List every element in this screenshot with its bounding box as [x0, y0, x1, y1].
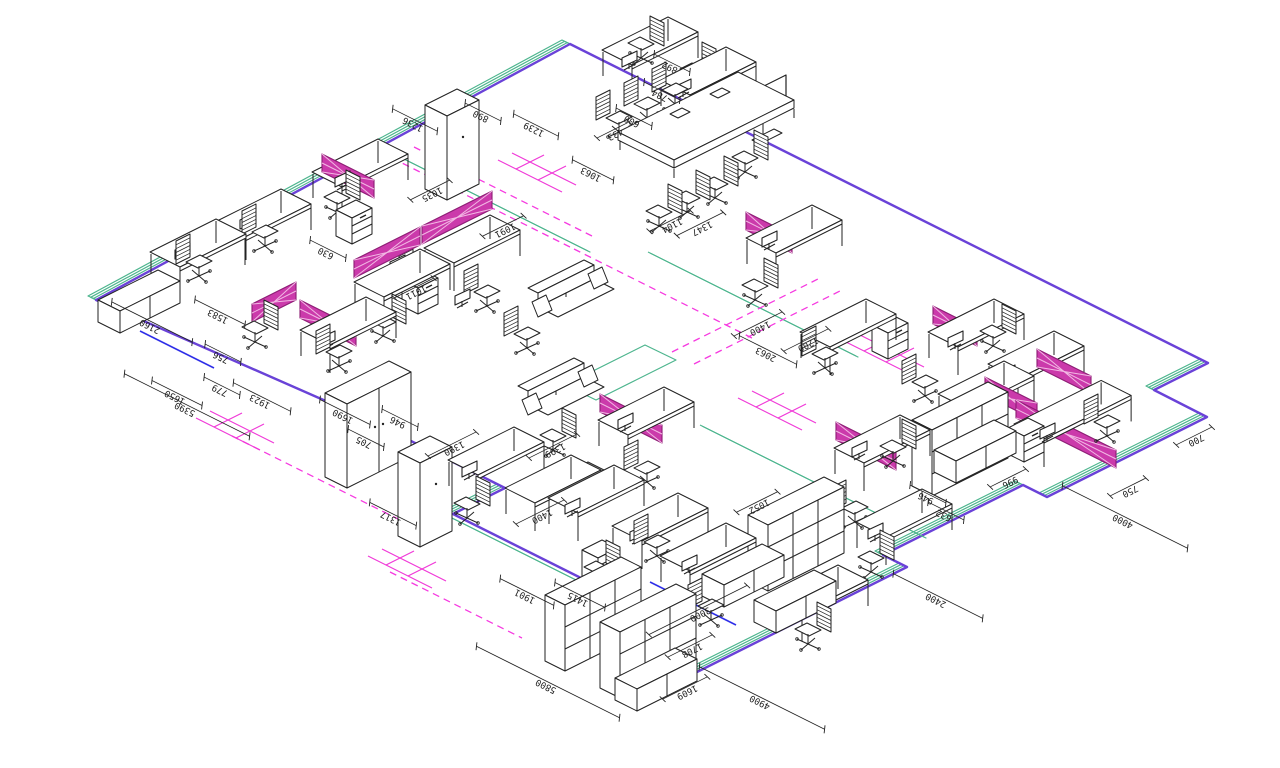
office-chair: [858, 530, 894, 579]
monitor: [455, 289, 470, 308]
dimension-label: 779: [211, 381, 230, 397]
dimension-label: 1347: [690, 218, 714, 237]
low-cabinet: [98, 270, 180, 333]
office-chair: [464, 264, 500, 313]
dimension-label: 5800: [534, 676, 558, 695]
dimension-label: 1239: [522, 119, 546, 138]
desk: [746, 205, 842, 281]
floor-plan-canvas[interactable]: 2160165053907791923158375663010111091103…: [0, 0, 1280, 768]
dimension-label: 1400: [748, 318, 772, 337]
office-chair: [742, 258, 778, 307]
dimension-label: 750: [1120, 482, 1139, 498]
dimension-label: 700: [1186, 431, 1205, 447]
sofa: [518, 358, 604, 415]
drawer-pedestal: [336, 200, 372, 244]
wardrobe: [398, 436, 452, 547]
dimension-label: 1901: [513, 586, 537, 605]
sofa: [528, 260, 614, 317]
dimension-label: 2400: [924, 590, 948, 609]
dimension-label: 4900: [748, 692, 772, 711]
office-chair: [902, 354, 938, 403]
dimension-label: 1583: [206, 306, 230, 325]
dimension-label: 630: [317, 244, 336, 260]
dimension-label: 4000: [1111, 511, 1135, 530]
dimension-label: 1104: [660, 215, 684, 234]
dimension-label: 2063: [754, 344, 778, 363]
meeting-table: [618, 72, 794, 178]
dimension-label: 1063: [579, 164, 603, 183]
dimension-label: 1923: [248, 391, 272, 410]
office-chair: [504, 306, 540, 355]
dimension-label: 1400: [530, 506, 554, 525]
desk: [598, 387, 694, 463]
floor-plan-viewport[interactable]: 2160165053907791923158375663010111091103…: [0, 0, 1280, 768]
